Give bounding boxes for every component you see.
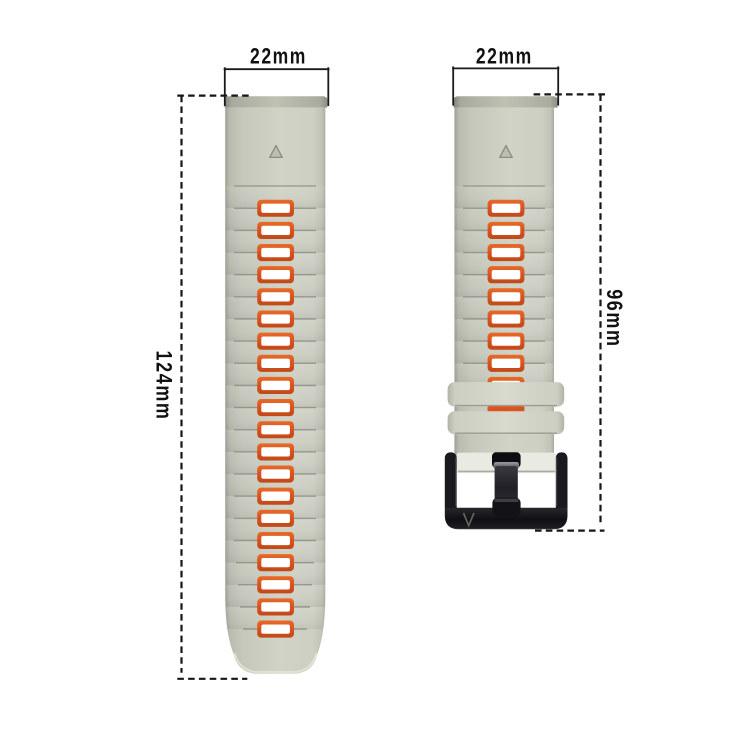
svg-text:124mm: 124mm xyxy=(151,351,175,421)
svg-text:22mm: 22mm xyxy=(476,45,533,70)
svg-text:96mm: 96mm xyxy=(601,289,625,347)
svg-text:22mm: 22mm xyxy=(250,45,307,70)
